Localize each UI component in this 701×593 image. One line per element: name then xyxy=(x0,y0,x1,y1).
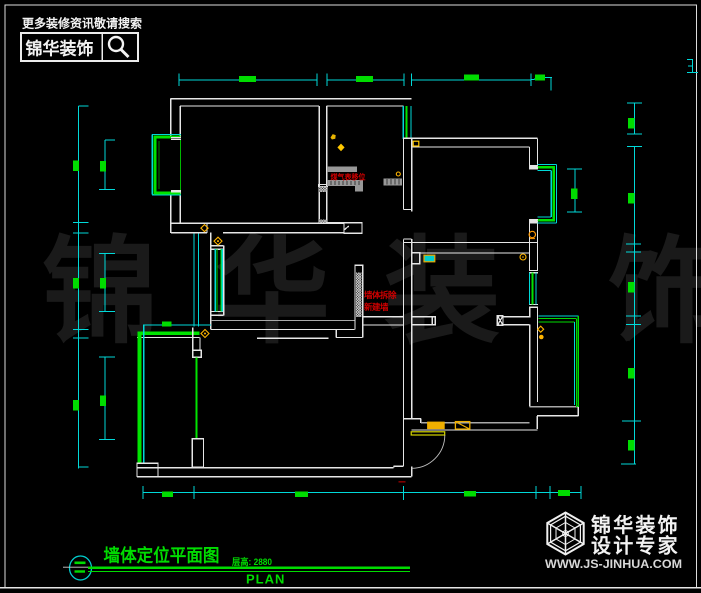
svg-text:更多装修资讯敬请搜索: 更多装修资讯敬请搜索 xyxy=(22,16,142,31)
svg-text:PLAN: PLAN xyxy=(246,572,285,587)
svg-text:WWW.JS-JINHUA.COM: WWW.JS-JINHUA.COM xyxy=(545,559,682,571)
svg-text:墙体定位平面图: 墙体定位平面图 xyxy=(104,546,220,566)
svg-text:煤气表移位: 煤气表移位 xyxy=(331,172,366,182)
svg-text:新建墙: 新建墙 xyxy=(364,302,389,312)
svg-text:华: 华 xyxy=(214,227,330,357)
svg-text:层高: 2880: 层高: 2880 xyxy=(232,556,272,567)
svg-text:锦华装饰: 锦华装饰 xyxy=(26,39,94,59)
svg-text:锦华装饰: 锦华装饰 xyxy=(591,513,680,537)
svg-text:装: 装 xyxy=(384,227,500,357)
svg-text:墙体拆除: 墙体拆除 xyxy=(364,290,397,300)
svg-text:设计专家: 设计专家 xyxy=(591,534,680,558)
svg-text:饰: 饰 xyxy=(608,227,701,357)
